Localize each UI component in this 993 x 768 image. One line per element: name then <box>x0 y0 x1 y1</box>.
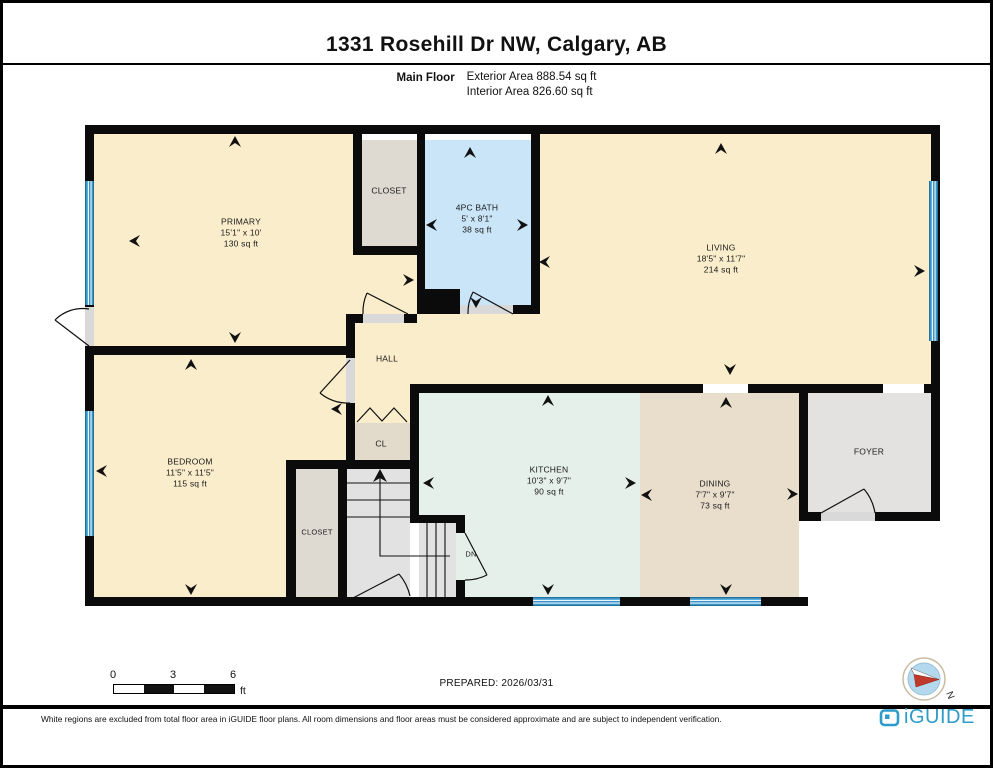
floor-plan-page: 1331 Rosehill Dr NW, Calgary, AB Main Fl… <box>0 0 993 768</box>
compass: N <box>896 655 962 705</box>
wall <box>531 134 540 314</box>
wall <box>417 134 425 314</box>
wall <box>425 289 460 314</box>
room-floor-stairs-up <box>347 469 410 597</box>
room-label-living: LIVING 18'5" x 11'7" 214 sq ft <box>697 243 746 276</box>
wall <box>410 384 419 523</box>
wall <box>808 512 821 521</box>
room-label-foyer: FOYER <box>854 447 884 458</box>
room-label-closet-bedroom: CLOSET <box>301 527 332 538</box>
wall <box>353 246 425 255</box>
door-opening <box>346 358 355 403</box>
wall <box>875 512 940 521</box>
door-opening <box>85 307 94 346</box>
wall <box>404 314 417 323</box>
prepared-date: PREPARED: 2026/03/31 <box>3 678 990 689</box>
wall <box>748 384 883 393</box>
room-label-bedroom: BEDROOM 11'5" x 11'5" 115 sq ft <box>166 457 214 490</box>
wall <box>456 580 465 597</box>
window <box>85 181 94 305</box>
wall <box>85 346 346 355</box>
door-opening <box>821 512 875 521</box>
compass-n-label: N <box>943 690 956 701</box>
room-floor-hall-strip <box>355 384 410 423</box>
wall <box>456 515 465 533</box>
room-label-dining: DINING 7'7" x 9'7" 73 sq ft <box>695 479 734 512</box>
window <box>85 411 94 536</box>
room-label-hall: HALL <box>376 354 398 365</box>
room-label-primary: PRIMARY 15'1" x 10' 130 sq ft <box>220 217 261 250</box>
iguide-logo-text: iGUIDE <box>904 706 975 729</box>
iguide-logo: iGUIDE <box>879 706 975 729</box>
iguide-logo-icon <box>879 708 901 728</box>
door-opening <box>460 305 513 314</box>
wall <box>286 469 296 597</box>
room-floor-hall <box>355 314 540 384</box>
room-label-bath: 4PC BATH 5' x 8'1" 38 sq ft <box>456 203 499 236</box>
wall <box>353 134 362 255</box>
disclaimer-text: White regions are excluded from total fl… <box>41 714 761 724</box>
door-opening <box>363 314 404 323</box>
wall <box>410 384 703 393</box>
wall <box>346 314 355 358</box>
wall <box>85 125 940 134</box>
wall <box>338 460 347 606</box>
room-floor-stairs-down <box>419 523 456 597</box>
stairs-dn-label: DN <box>465 549 476 560</box>
window <box>929 181 938 341</box>
room-label-closet-top: CLOSET <box>371 186 406 197</box>
wall <box>924 384 940 393</box>
room-floor-vestibule <box>353 255 417 314</box>
footer-divider <box>3 705 990 709</box>
wall <box>799 384 808 521</box>
floor-plan: PRIMARY 15'1" x 10' 130 sq ft CLOSET 4PC… <box>3 3 993 768</box>
room-label-cl: CL <box>375 439 386 450</box>
wall <box>286 460 419 469</box>
room-label-kitchen: KITCHEN 10'3" x 9'7" 90 sq ft <box>527 465 571 498</box>
window <box>533 597 620 606</box>
wall <box>513 305 540 314</box>
window <box>690 597 761 606</box>
